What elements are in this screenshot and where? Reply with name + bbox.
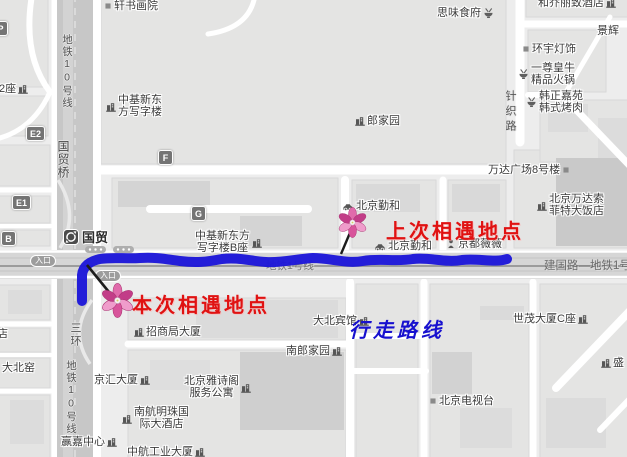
poi-zhonghang-building[interactable]: 中航工业大厦 — [127, 446, 205, 457]
poi-label: 韩式烤肉 — [539, 103, 583, 115]
poi-heqiao-hotel[interactable]: 和乔丽致酒店 — [538, 0, 616, 9]
poi-wanda-plaza-8[interactable]: 万达广场8号楼 — [488, 164, 570, 176]
poi-langjiayuan[interactable]: 郎家园 — [355, 115, 400, 127]
building-icon — [106, 102, 116, 112]
vertical-label-metro10-south: 地铁10号线 — [64, 360, 79, 435]
poi-label: 思味食府 — [437, 7, 481, 19]
poi-zhaoshang-building[interactable]: 招商局大厦 — [134, 326, 201, 338]
poi-hanzheng-bbq[interactable]: 韩正嘉苑 韩式烤肉 — [526, 91, 583, 114]
building-icon — [601, 358, 611, 368]
poi-label: 轩书画院 — [114, 0, 158, 12]
poi-label: 韩正嘉苑 — [539, 91, 583, 103]
vertical-label-zhenzhi-road: 针织路 — [502, 90, 518, 135]
poi-ascott-apartments[interactable]: 北京雅诗阁 服务公寓 — [184, 376, 251, 399]
poi-label: 北京雅诗阁 — [184, 376, 239, 388]
building-icon — [606, 0, 616, 8]
poi-wanda-sofitel-hotel[interactable]: 北京万达索 菲特大饭店 — [537, 194, 604, 217]
poi-label: 大北窑 — [2, 362, 35, 374]
poi-label: 世茂大厦C座 — [513, 313, 576, 325]
badge-parking[interactable]: P — [0, 21, 8, 36]
poi-nanhang-hotel[interactable]: 南航明珠国 际大酒店 — [122, 407, 189, 430]
poi-yizun-hotpot[interactable]: 一尊皇牛 精品火锅 — [518, 63, 575, 86]
map-canvas[interactable]: 地铁1号线 建国路—地铁1号线 地铁10号线 国贸桥 三环 地铁10号线 针织路… — [0, 0, 627, 457]
poi-label: 中基新东方 — [195, 231, 250, 243]
poi-label: 京汇大厦 — [94, 374, 138, 386]
building-icon — [107, 437, 117, 447]
badge-exit-g[interactable]: G — [191, 206, 206, 221]
poi-label: 郎家园 — [367, 115, 400, 127]
vertical-label-guomao-bridge: 国贸桥 — [55, 140, 72, 179]
poi-label: 招商局大厦 — [146, 326, 201, 338]
flower-marker-last-meeting — [337, 207, 368, 238]
building-icon — [252, 238, 262, 248]
poi-sheng-partial[interactable]: 盛 — [601, 357, 624, 369]
square-icon — [104, 2, 112, 10]
poi-zhongji-office-b[interactable]: 中基新东方 写字楼B座 — [195, 231, 262, 254]
car-icon — [374, 241, 386, 252]
entrance-badge-east[interactable]: 入口 — [95, 270, 121, 282]
building-icon — [140, 375, 150, 385]
restaurant-icon — [526, 97, 537, 108]
poi-label: 服务公寓 — [190, 388, 234, 400]
poi-label: 2座 — [0, 83, 16, 95]
metro-icon — [63, 229, 79, 245]
poi-huanyu-lighting[interactable]: 环宇灯饰 — [522, 43, 576, 55]
poi-shimao-tower-c[interactable]: 世茂大厦C座 — [513, 313, 588, 325]
poi-nanlang-jiayuan[interactable]: 南郎家园 — [286, 345, 342, 357]
poi-label: 万达广场8号楼 — [488, 164, 560, 176]
poi-label: 中航工业大厦 — [127, 446, 193, 457]
poi-label: 店 — [0, 328, 8, 340]
poi-label: 中基新东 — [118, 95, 162, 107]
flower-marker-current-meeting — [100, 283, 135, 318]
building-icon — [355, 116, 365, 126]
annotation-current-meeting: 本次相遇地点 — [132, 289, 270, 318]
poi-label: 际大酒店 — [140, 419, 184, 431]
poi-label: 盛 — [613, 357, 624, 369]
building-icon — [241, 383, 251, 393]
poi-label: 南郎家园 — [286, 345, 330, 357]
poi-tower-2[interactable]: 2座 — [0, 83, 28, 95]
building-icon — [578, 314, 588, 324]
poi-label: 北京万达索 — [549, 194, 604, 206]
poi-beijing-tv-station[interactable]: 北京电视台 — [429, 395, 494, 407]
building-icon — [195, 447, 205, 457]
poi-label: 精品火锅 — [531, 75, 575, 87]
station-name: 国贸 — [82, 227, 108, 246]
poi-jinghui[interactable]: 景辉 — [597, 25, 619, 37]
vertical-label-third-ring: 三环 — [67, 322, 83, 348]
square-icon — [562, 166, 570, 174]
poi-label: 一尊皇牛 — [531, 63, 575, 75]
poi-yingjia-center[interactable]: 赢嘉中心 — [61, 436, 117, 448]
poi-xuanshu-gallery[interactable]: 轩书画院 — [104, 0, 158, 12]
poi-dabeiyao[interactable]: 大北窑 — [2, 362, 35, 374]
poi-label: 菲特大饭店 — [549, 206, 604, 218]
entrance-badge-west[interactable]: 入口 — [30, 255, 56, 267]
building-icon — [537, 201, 547, 211]
vertical-label-metro10-north: 地铁10号线 — [60, 34, 75, 109]
annotation-last-meeting: 上次相遇地点 — [386, 215, 524, 244]
restaurant-icon — [483, 8, 494, 19]
badge-exit-b[interactable]: B — [1, 231, 16, 246]
square-icon — [522, 45, 530, 53]
building-icon — [332, 346, 342, 356]
building-icon — [18, 84, 28, 94]
road-label-jianguo-road: 建国路—地铁1号线 — [544, 257, 627, 273]
restaurant-icon — [518, 69, 529, 80]
badge-exit-e2[interactable]: E2 — [26, 126, 45, 141]
guomao-metro-station[interactable]: 国贸 — [63, 227, 108, 246]
poi-siwei-restaurant[interactable]: 思味食府 — [437, 7, 494, 19]
building-icon — [122, 414, 132, 424]
badge-exit-f[interactable]: F — [158, 150, 173, 165]
road-label-metro-line1: 地铁1号线 — [266, 258, 314, 273]
poi-zhongji-office-a[interactable]: 中基新东 方写字楼 — [106, 95, 162, 118]
annotation-walking-route: 行走路线 — [349, 314, 445, 343]
poi-label: 南航明珠国 — [134, 407, 189, 419]
poi-label: 景辉 — [597, 25, 619, 37]
square-icon — [429, 397, 437, 405]
poi-jinghui-building[interactable]: 京汇大厦 — [94, 374, 150, 386]
poi-dian-partial[interactable]: 店 — [0, 328, 8, 340]
building-icon — [134, 327, 144, 337]
poi-label: 方写字楼 — [118, 107, 162, 119]
poi-label: 写字楼B座 — [197, 243, 248, 255]
poi-label: 环宇灯饰 — [532, 43, 576, 55]
badge-exit-e1[interactable]: E1 — [12, 195, 31, 210]
poi-label: 和乔丽致酒店 — [538, 0, 604, 9]
poi-label: 赢嘉中心 — [61, 436, 105, 448]
poi-label: 北京电视台 — [439, 395, 494, 407]
